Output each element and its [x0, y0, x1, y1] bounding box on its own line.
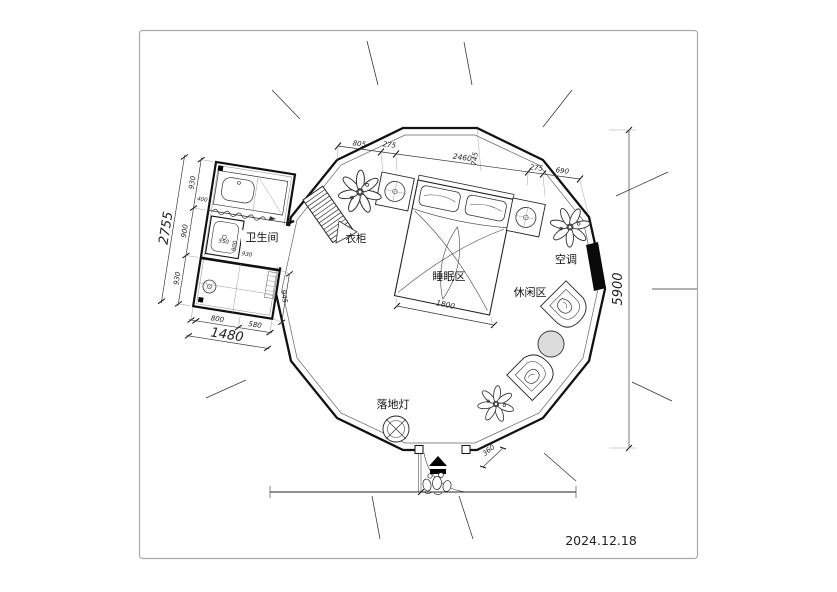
- dim-bath-total: 1480: [210, 325, 245, 345]
- nightstand-right: [506, 198, 545, 237]
- dim-left-900: 900: [180, 223, 190, 238]
- floor-lamp-symbol: [383, 416, 409, 442]
- dim-left-930b: 930: [172, 271, 182, 286]
- dim-left-930a: 930: [187, 175, 197, 190]
- dim-bath-800: 800: [210, 314, 225, 324]
- entry-arrow: [429, 456, 447, 466]
- side-table: [538, 331, 564, 357]
- label-wardrobe: 衣柜: [346, 232, 367, 245]
- dim-top-690: 690: [555, 166, 570, 176]
- floor-plan-drawing: 550 900 930 930 900 930 2755: [0, 0, 837, 592]
- nightstand-left: [375, 172, 414, 211]
- ground-line: [270, 486, 576, 498]
- entry-shoes-plants: [422, 473, 452, 495]
- label-air-conditioner: 空调: [555, 252, 577, 266]
- door-hinge-mark: [218, 165, 224, 171]
- right-dimension-5900: 5900: [609, 127, 636, 451]
- dim-plan-diameter: 5900: [611, 272, 626, 305]
- entrance: [415, 444, 470, 495]
- dim-bath-580: 580: [248, 320, 263, 330]
- dim-top-805: 805: [352, 139, 367, 149]
- door-post-left: [415, 446, 423, 454]
- label-leisure-area: 休闲区: [514, 285, 547, 299]
- dim-left-total: 2755: [157, 211, 177, 246]
- door-hinge-mark: [198, 297, 204, 303]
- label-floor-lamp: 落地灯: [377, 398, 410, 411]
- label-sleeping-area: 睡眠区: [433, 270, 466, 283]
- drawing-date: 2024.12.18: [565, 533, 637, 548]
- floor-plan-canvas: 550 900 930 930 900 930 2755: [0, 0, 837, 592]
- label-bathroom: 卫生间: [246, 230, 279, 244]
- dim-basin-400: 400: [196, 196, 208, 204]
- door-post-right: [462, 446, 470, 454]
